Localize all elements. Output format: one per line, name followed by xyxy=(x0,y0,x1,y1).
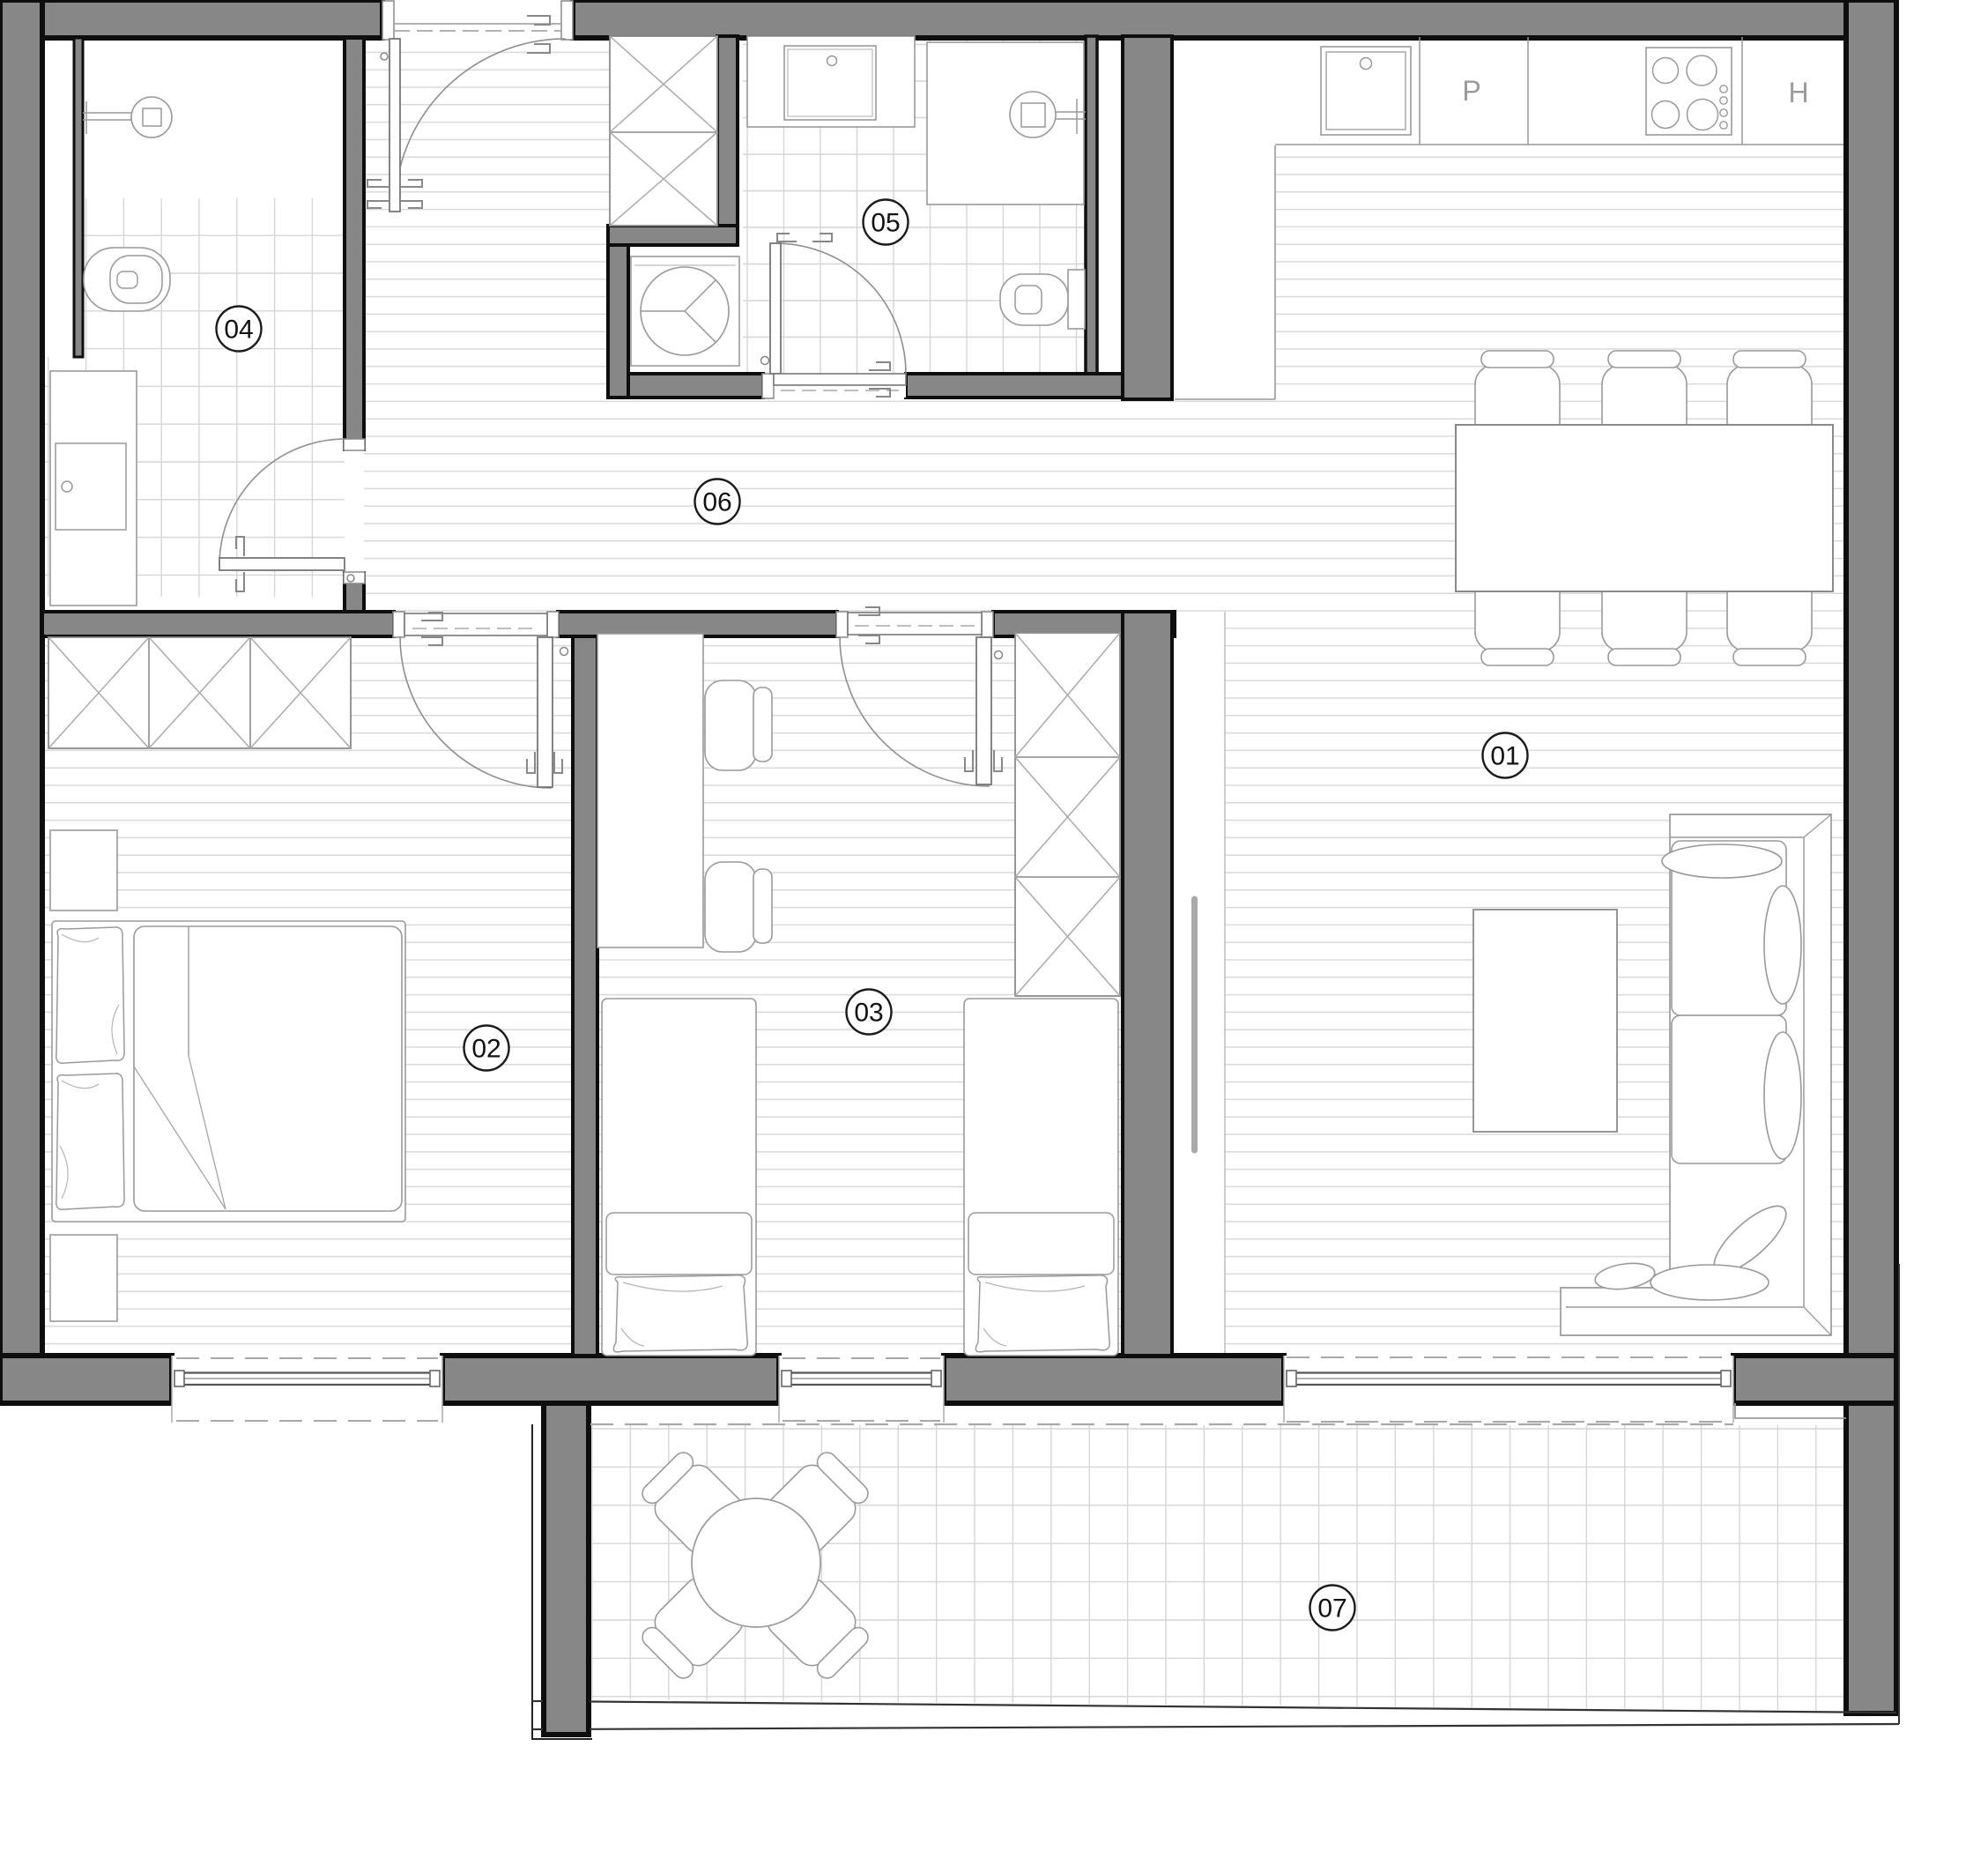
svg-text:04: 04 xyxy=(224,316,253,345)
svg-text:05: 05 xyxy=(871,209,900,238)
svg-text:06: 06 xyxy=(702,488,731,517)
svg-text:02: 02 xyxy=(471,1035,501,1064)
svg-text:01: 01 xyxy=(1490,742,1519,771)
svg-text:H: H xyxy=(1788,77,1808,108)
svg-text:07: 07 xyxy=(1317,1594,1346,1624)
svg-text:P: P xyxy=(1462,75,1480,107)
svg-text:03: 03 xyxy=(854,999,883,1028)
